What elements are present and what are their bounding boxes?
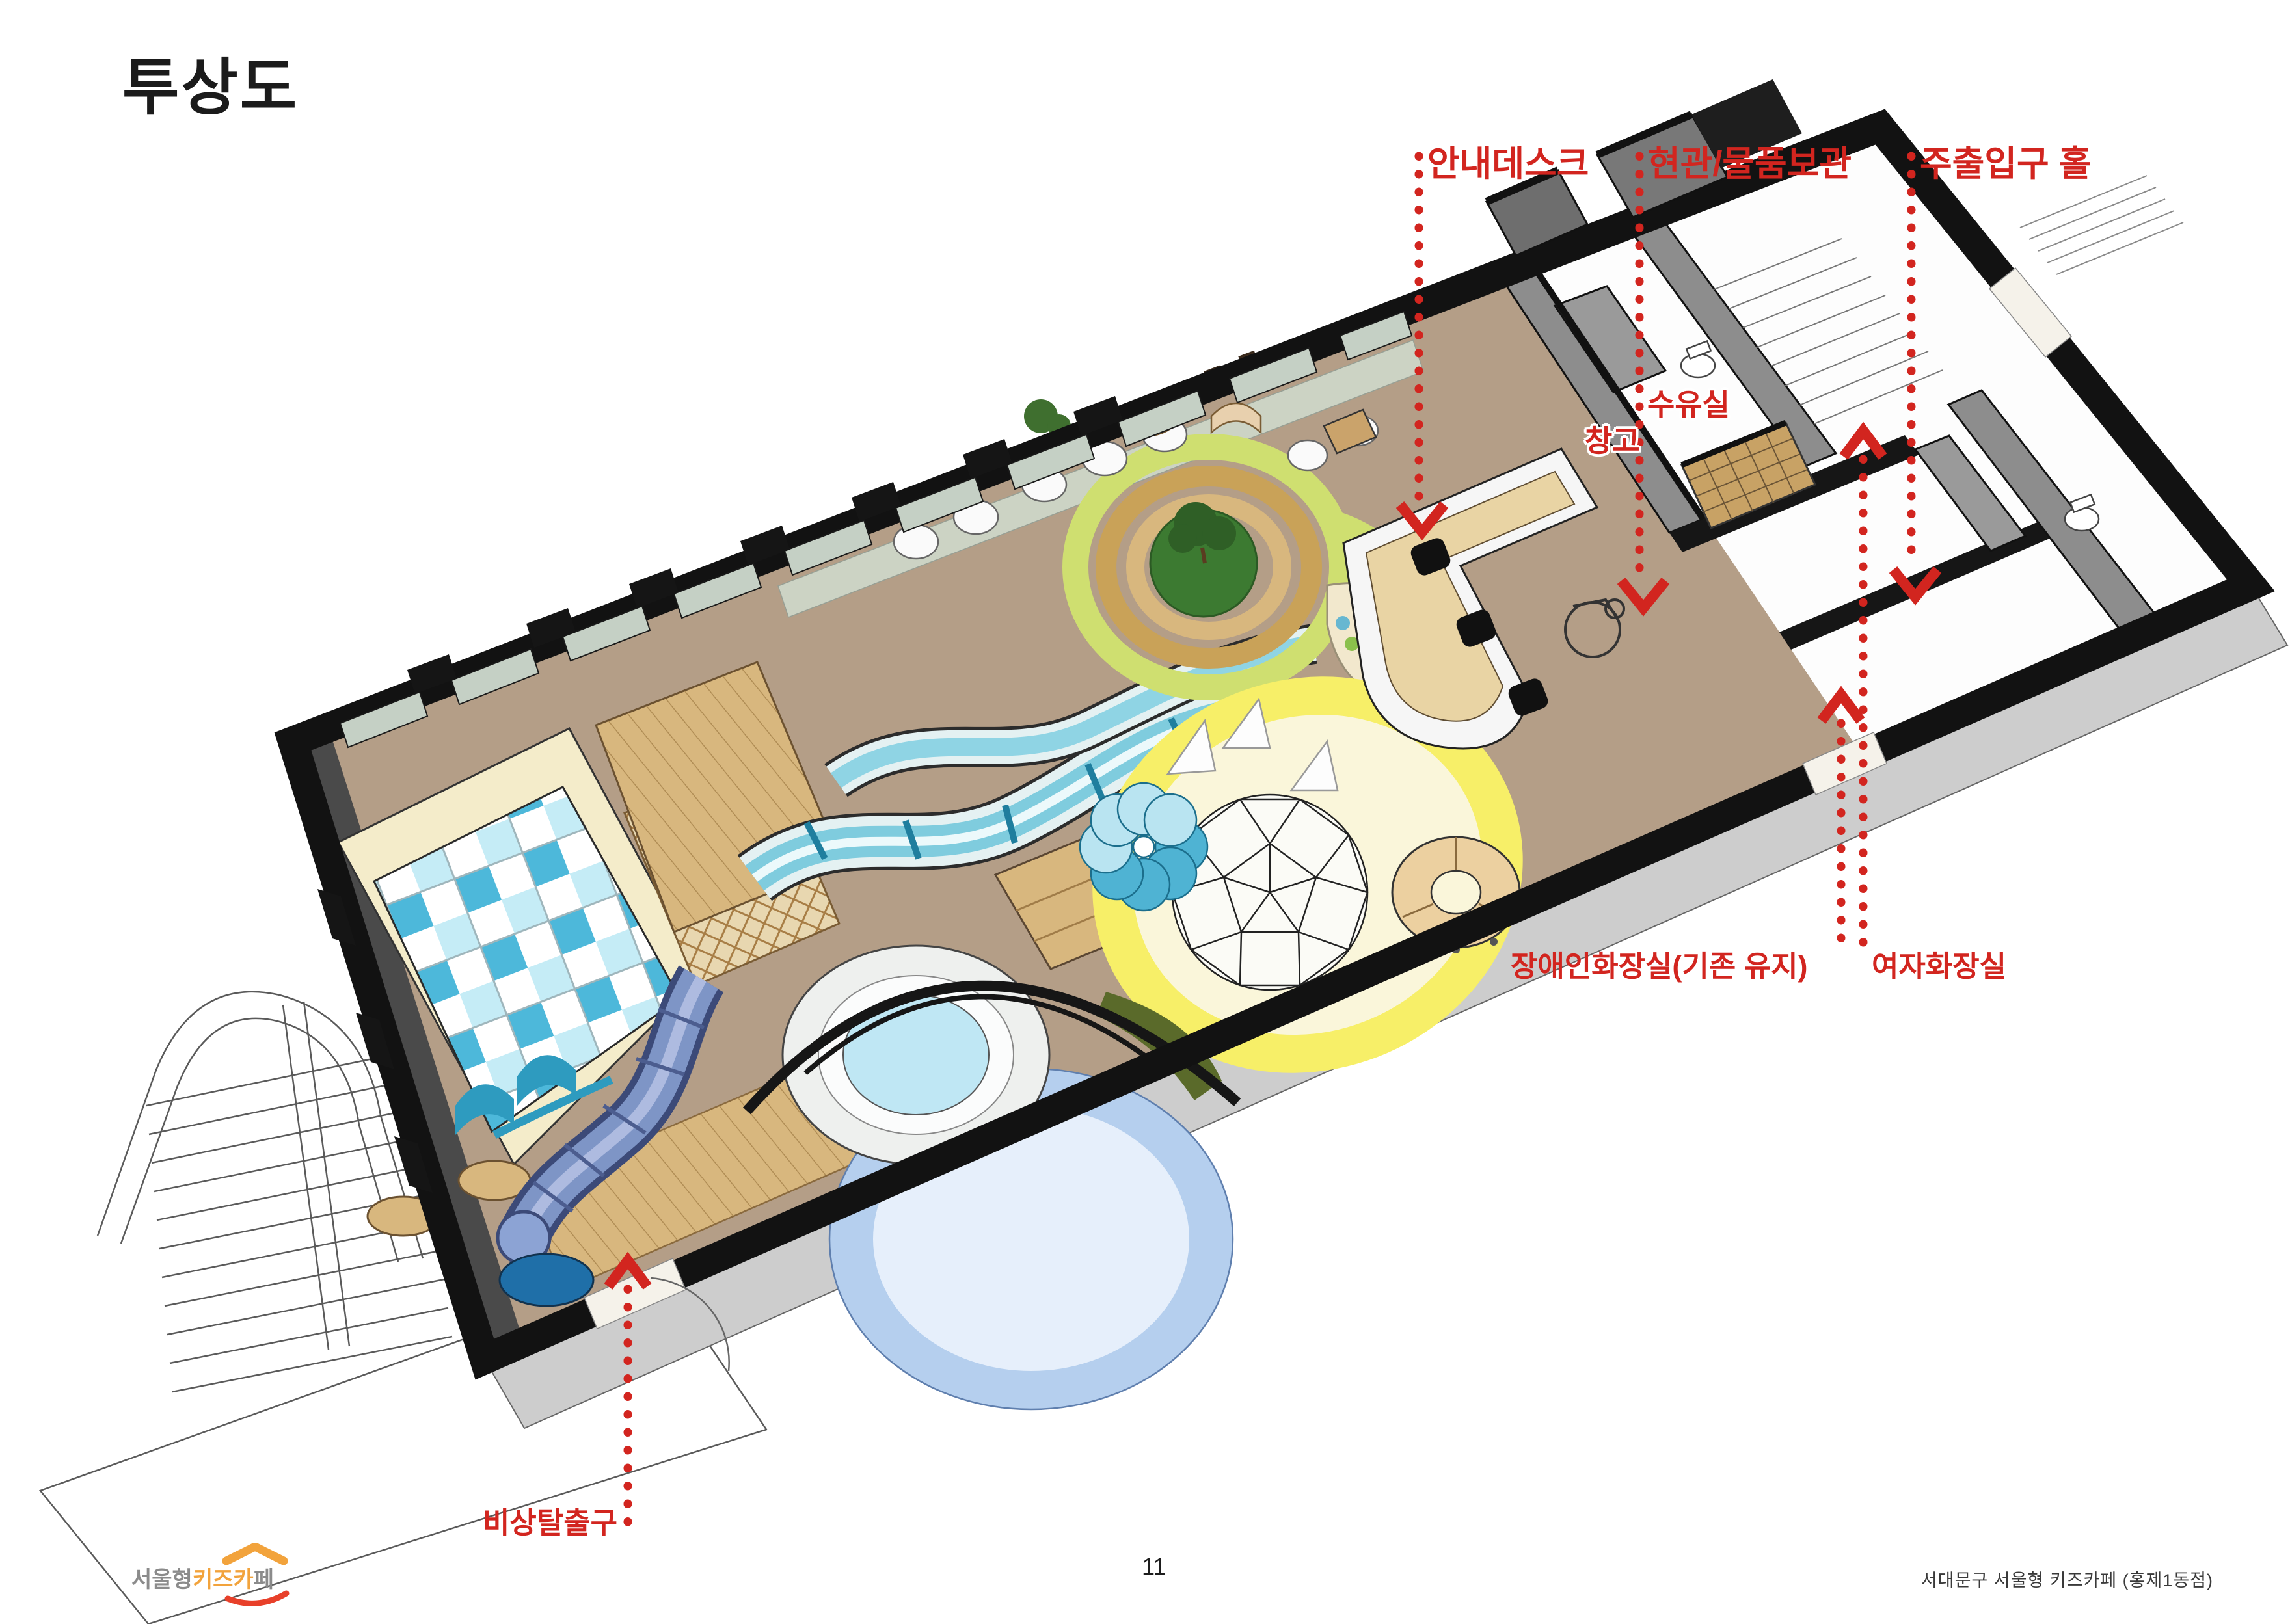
annotation-label-entrance-storage: 현관/물품보관	[1648, 146, 1852, 183]
floor-plan-illustration	[0, 0, 2290, 1624]
annotation-label-storage-room: 창고	[1585, 425, 1640, 457]
page-number: 11	[1142, 1553, 1166, 1580]
footer-project-name: 서대문구 서울형 키즈카페 (홍제1동점)	[1921, 1566, 2213, 1591]
logo-text-part1: 서울형	[131, 1567, 193, 1592]
logo-text-part3: 페	[254, 1567, 274, 1592]
flower-seat	[1080, 783, 1207, 911]
slide: 투상도	[0, 0, 2290, 1624]
logo-text-part2: 키즈카	[193, 1567, 254, 1592]
annotation-label-info-desk: 안내데스크	[1427, 146, 1589, 183]
seoul-kids-cafe-logo: 서울형키즈카페	[130, 1543, 299, 1614]
annotation-label-accessible-restroom: 장애인화장실(기존 유지)	[1511, 951, 1807, 981]
geodesic-dome	[1172, 795, 1367, 990]
annotation-label-womens-restroom: 여자화장실	[1872, 951, 2006, 981]
annotation-label-emergency-exit: 비상탈출구	[483, 1508, 617, 1538]
annotation-label-nursing-room: 수유실	[1647, 389, 1730, 420]
exterior-upper-steps-outline	[2020, 176, 2183, 274]
annotation-label-main-entrance-hall: 주출입구 홀	[1920, 146, 2091, 183]
logo-text: 서울형키즈카페	[131, 1569, 274, 1591]
